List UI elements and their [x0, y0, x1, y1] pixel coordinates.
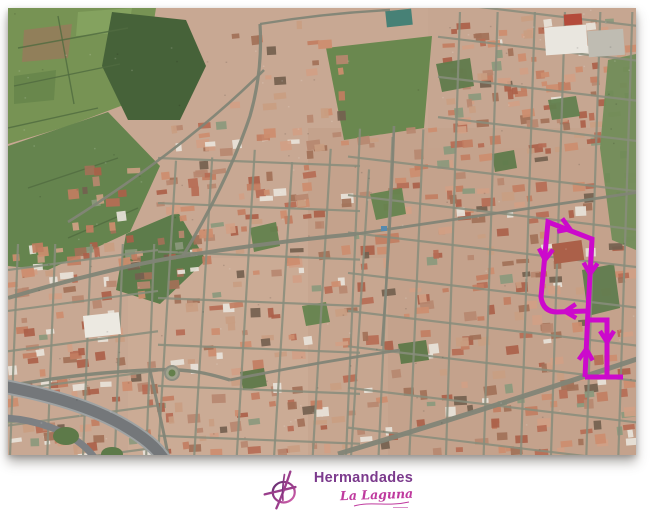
logo-subtitle: La Laguna — [340, 486, 414, 504]
satellite-image — [8, 8, 636, 455]
haze-overlay — [8, 8, 636, 455]
cross-circle-icon — [261, 463, 305, 517]
logo-title: Hermandades — [314, 471, 413, 486]
logo-text: Hermandades La Laguna — [314, 471, 413, 509]
aerial-map — [8, 8, 636, 455]
hermandades-logo: Hermandades La Laguna — [12, 460, 650, 520]
page: { "page": { "background": "#ffffff" }, "… — [0, 0, 650, 526]
